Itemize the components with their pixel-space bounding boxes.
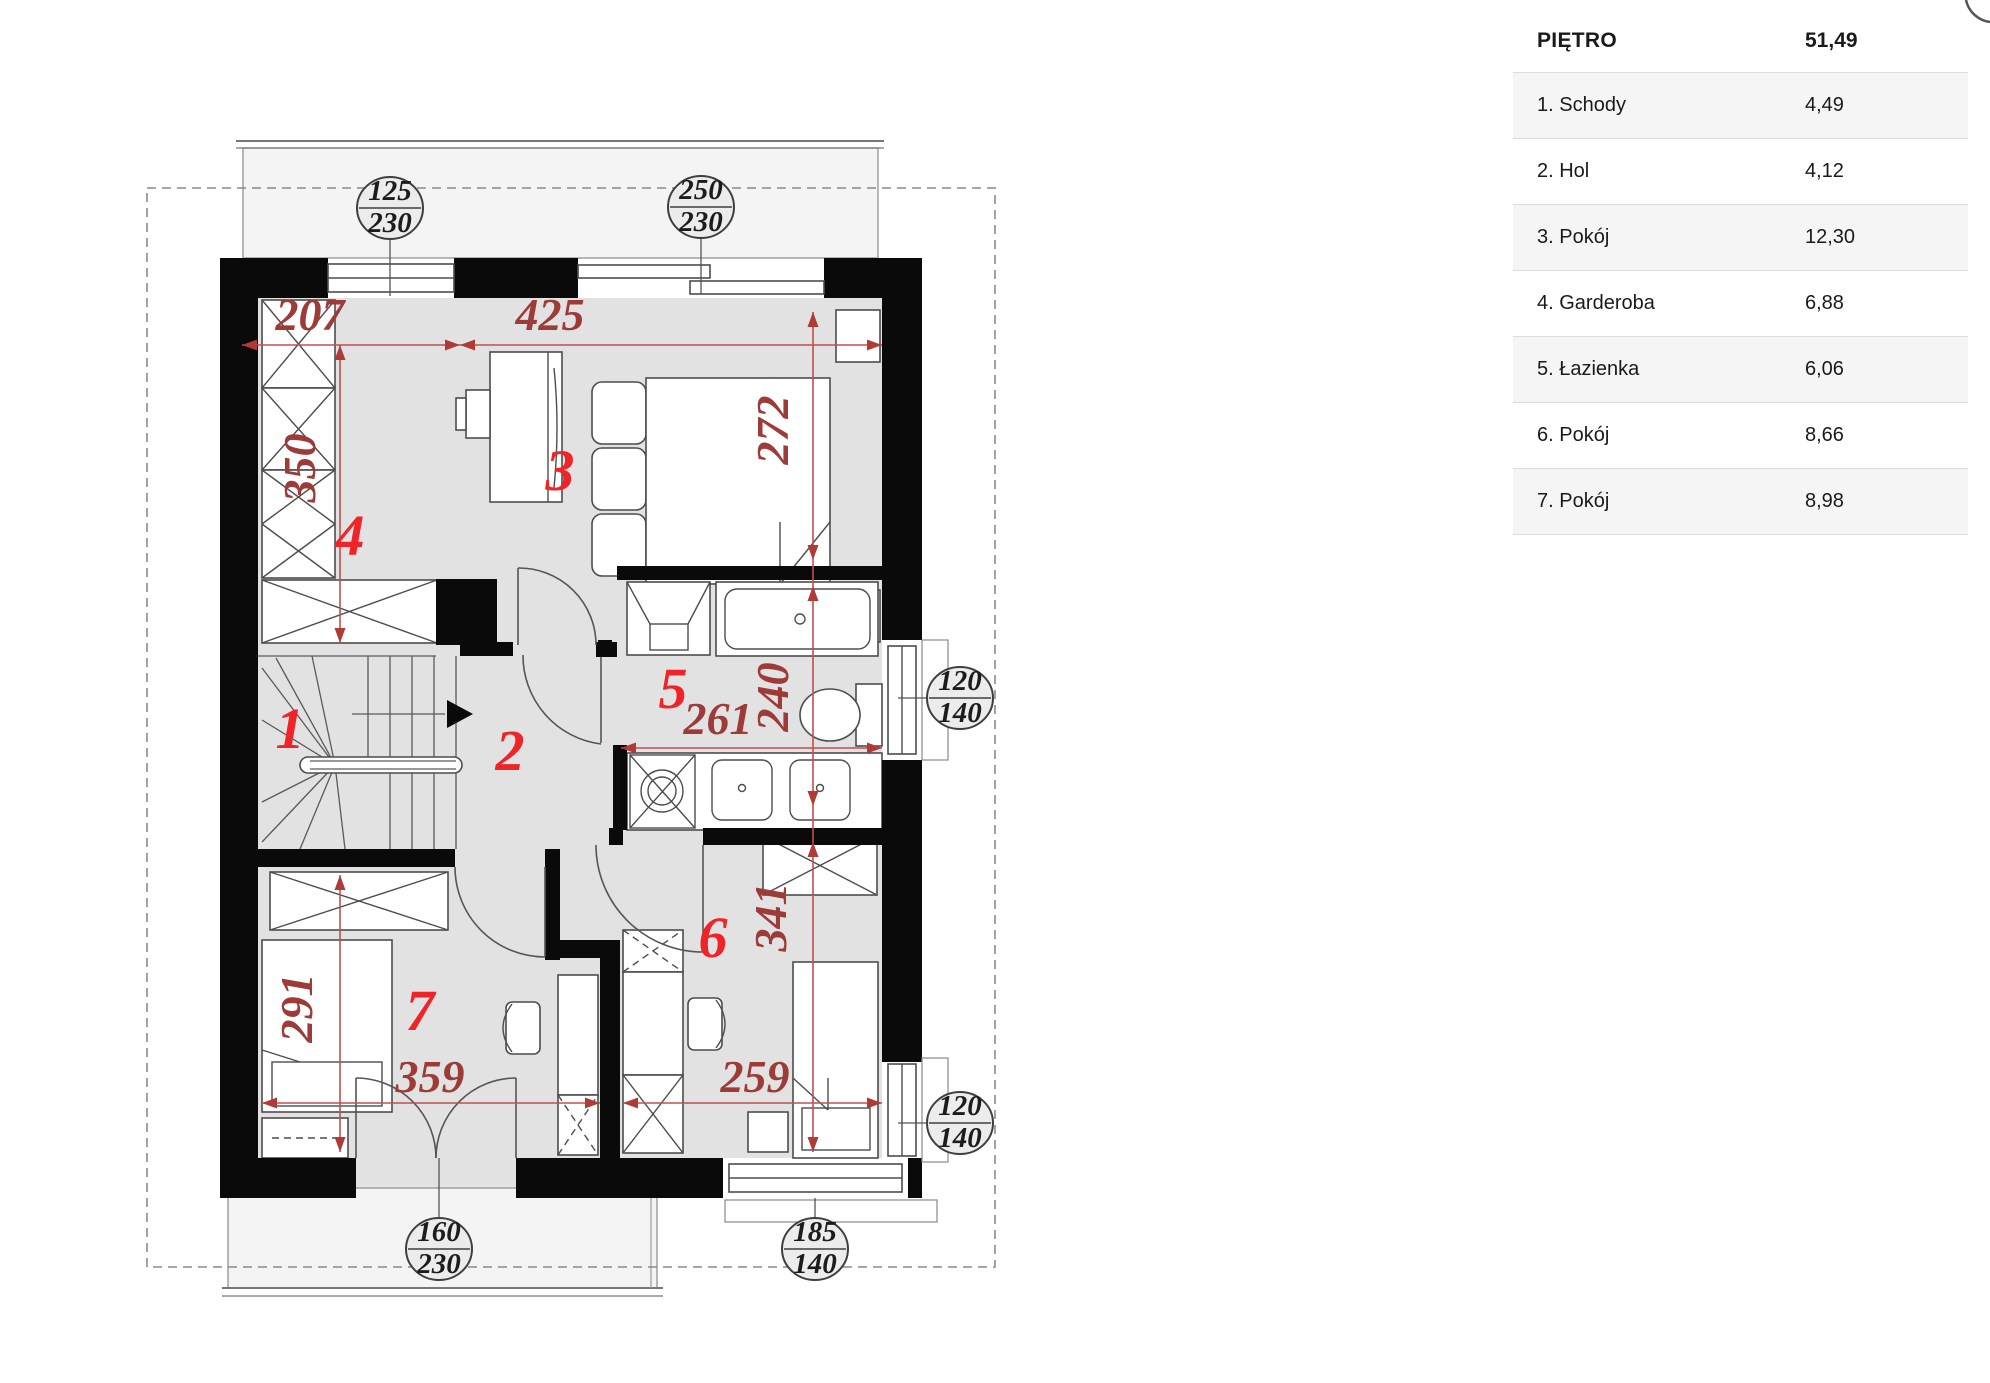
floor-total-area: 51,49: [1805, 29, 1858, 53]
dim-240-label: 240: [747, 663, 798, 733]
room-2-number: 2: [495, 718, 525, 783]
table-row: 1. Schody 4,49: [1513, 72, 1968, 138]
room-label: 2. Hol: [1513, 160, 1589, 183]
dim-261-label: 261: [683, 693, 753, 744]
room-area: 4,12: [1805, 160, 1844, 183]
room-3-number: 3: [545, 438, 575, 503]
svg-text:230: 230: [367, 207, 412, 239]
room-label: 6. Pokój: [1513, 424, 1609, 447]
dim-341-label: 341: [745, 883, 796, 953]
svg-text:140: 140: [938, 1122, 982, 1154]
room-1-number: 1: [276, 696, 305, 761]
dim-259-label: 259: [720, 1051, 790, 1102]
svg-text:230: 230: [678, 206, 723, 238]
room-area: 6,06: [1805, 358, 1844, 381]
table-row: 2. Hol 4,12: [1513, 138, 1968, 204]
dim-circle-185-140: 185 140: [782, 1216, 848, 1280]
cropped-corner-glyph: [1966, 0, 1990, 22]
dim-359-label: 359: [395, 1051, 465, 1102]
svg-text:140: 140: [938, 697, 982, 729]
room-label: 5. Łazienka: [1513, 358, 1639, 381]
room-5-number: 5: [659, 656, 688, 721]
room-area: 8,98: [1805, 490, 1844, 513]
room-label: 4. Garderoba: [1513, 292, 1655, 315]
dim-272-label: 272: [747, 396, 798, 466]
room-label: 3. Pokój: [1513, 226, 1609, 249]
svg-text:140: 140: [793, 1248, 837, 1280]
svg-text:185: 185: [793, 1216, 837, 1248]
dim-circle-120-140-bath: 120 140: [927, 665, 993, 729]
room-area: 12,30: [1805, 226, 1855, 249]
area-table: PIĘTRO 51,49 1. Schody 4,49 2. Hol 4,12 …: [1513, 10, 1968, 535]
dim-circle-120-140-room6: 120 140: [927, 1090, 993, 1154]
screenshot-root: 125 230 250 230 120 140 120 140 160 230: [0, 0, 1990, 1378]
svg-text:120: 120: [938, 665, 982, 697]
svg-text:230: 230: [416, 1248, 461, 1280]
room-4-number: 4: [335, 503, 365, 568]
table-row: 3. Pokój 12,30: [1513, 204, 1968, 270]
area-table-header: PIĘTRO 51,49: [1513, 10, 1968, 72]
room-7-number: 7: [406, 978, 437, 1043]
room-6-number: 6: [699, 905, 728, 970]
dim-circle-160-230: 160 230: [406, 1216, 472, 1280]
room-label: 1. Schody: [1513, 94, 1626, 117]
floor-title: PIĘTRO: [1513, 29, 1617, 53]
table-row: 4. Garderoba 6,88: [1513, 270, 1968, 336]
balcony-door-250-icon: [578, 265, 710, 278]
table-row: 6. Pokój 8,66: [1513, 402, 1968, 468]
dim-291-label: 291: [271, 974, 322, 1044]
dim-350-label: 350: [274, 434, 325, 504]
table-row: 5. Łazienka 6,06: [1513, 336, 1968, 402]
svg-text:160: 160: [417, 1216, 461, 1248]
room-label: 7. Pokój: [1513, 490, 1609, 513]
dim-207-label: 207: [275, 289, 347, 340]
svg-text:120: 120: [938, 1090, 982, 1122]
terrace-top: [236, 141, 884, 258]
dim-425-label: 425: [515, 289, 585, 340]
dim-circle-125-230: 125 230: [357, 175, 423, 239]
table-row: 7. Pokój 8,98: [1513, 468, 1968, 535]
room-area: 4,49: [1805, 94, 1844, 117]
room-area: 8,66: [1805, 424, 1844, 447]
dim-circle-250-230: 250 230: [668, 174, 734, 238]
svg-text:125: 125: [368, 175, 412, 207]
svg-text:250: 250: [678, 174, 723, 206]
room-area: 6,88: [1805, 292, 1844, 315]
